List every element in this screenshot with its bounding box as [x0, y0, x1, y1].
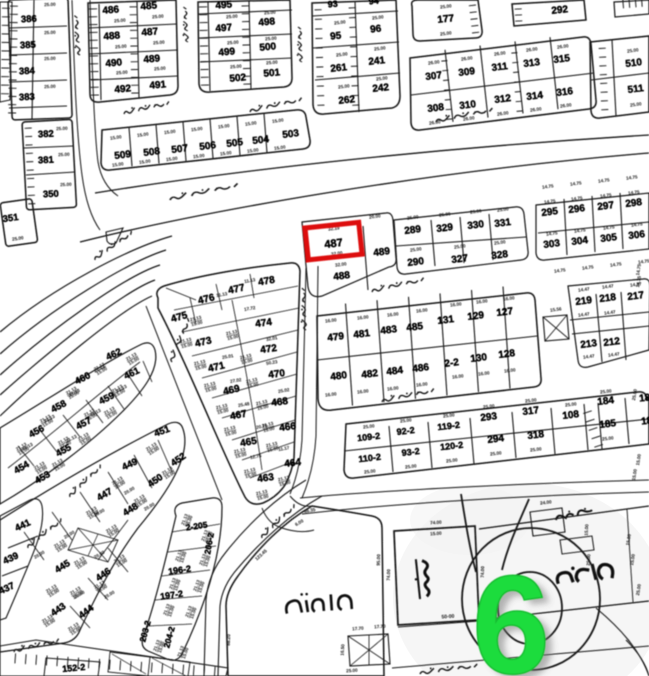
svg-text:295: 295 [541, 206, 559, 219]
svg-text:327: 327 [451, 253, 469, 266]
svg-text:74.00: 74.00 [430, 520, 442, 526]
svg-text:351: 351 [2, 212, 20, 225]
svg-text:509: 509 [114, 149, 132, 162]
svg-text:261: 261 [330, 62, 348, 75]
svg-text:482: 482 [361, 368, 379, 381]
svg-text:386: 386 [21, 14, 37, 26]
svg-text:503: 503 [282, 128, 300, 141]
svg-text:488: 488 [333, 270, 351, 283]
svg-text:480: 480 [330, 370, 348, 383]
svg-text:481: 481 [353, 328, 371, 341]
svg-text:468: 468 [271, 396, 289, 409]
svg-text:25.00: 25.00 [153, 39, 165, 45]
svg-text:25.00: 25.00 [44, 56, 56, 62]
svg-text:315: 315 [553, 53, 571, 66]
svg-text:25.00: 25.00 [152, 13, 164, 19]
svg-text:242: 242 [372, 82, 390, 95]
svg-text:485: 485 [140, 0, 158, 12]
svg-text:128: 128 [498, 348, 516, 361]
svg-text:294: 294 [487, 433, 505, 446]
svg-text:18: 18 [639, 392, 649, 404]
svg-text:506: 506 [199, 140, 217, 153]
svg-text:486: 486 [102, 4, 120, 16]
svg-text:127: 127 [496, 306, 514, 319]
svg-text:177: 177 [437, 13, 455, 26]
svg-text:25.00: 25.00 [44, 2, 56, 8]
svg-text:383: 383 [19, 92, 35, 104]
svg-text:500: 500 [259, 41, 277, 53]
svg-text:25.00: 25.00 [586, 554, 592, 566]
svg-text:489: 489 [143, 53, 161, 65]
svg-text:312: 312 [494, 93, 512, 106]
svg-text:16.50: 16.50 [340, 644, 346, 656]
svg-text:329: 329 [436, 222, 454, 235]
svg-text:184: 184 [597, 395, 615, 408]
svg-text:508: 508 [143, 146, 161, 159]
svg-text:262: 262 [338, 94, 356, 107]
svg-text:499: 499 [218, 46, 236, 58]
svg-text:296: 296 [568, 203, 586, 216]
svg-text:95.00: 95.00 [376, 554, 381, 566]
svg-text:25.00: 25.00 [116, 69, 128, 75]
svg-text:219: 219 [575, 295, 593, 308]
svg-text:492: 492 [114, 83, 132, 95]
svg-text:489: 489 [373, 246, 391, 259]
svg-text:308: 308 [427, 102, 445, 115]
svg-text:318: 318 [527, 429, 545, 442]
svg-text:218: 218 [599, 292, 617, 305]
svg-text:504: 504 [252, 134, 270, 147]
svg-text:306: 306 [628, 229, 646, 242]
svg-text:298: 298 [625, 197, 643, 210]
svg-text:108: 108 [562, 409, 580, 422]
svg-text:93-2: 93-2 [401, 446, 420, 458]
svg-text:488: 488 [103, 30, 121, 42]
svg-text:25.00: 25.00 [346, 668, 358, 674]
svg-text:497: 497 [215, 22, 233, 34]
svg-text:495: 495 [215, 0, 233, 12]
svg-text:185: 185 [599, 418, 617, 431]
svg-text:92-2: 92-2 [396, 425, 415, 437]
svg-text:316: 316 [556, 86, 574, 99]
svg-text:25.00: 25.00 [114, 17, 126, 23]
svg-text:25.00: 25.00 [44, 30, 56, 36]
svg-text:309: 309 [458, 66, 476, 79]
svg-text:491: 491 [149, 79, 167, 91]
svg-text:487: 487 [324, 237, 344, 251]
svg-text:385: 385 [20, 40, 37, 52]
svg-text:25.00: 25.00 [227, 39, 239, 45]
svg-text:485: 485 [406, 321, 424, 334]
svg-text:311: 311 [491, 61, 509, 74]
svg-text:50-00: 50-00 [441, 614, 454, 621]
svg-text:25.00: 25.00 [264, 9, 276, 15]
svg-text:93: 93 [327, 0, 338, 10]
svg-text:213: 213 [580, 338, 598, 351]
svg-text:25.00: 25.00 [265, 35, 277, 41]
svg-text:304: 304 [571, 235, 589, 248]
svg-text:95: 95 [330, 30, 343, 42]
svg-text:131: 131 [437, 314, 455, 327]
svg-text:289: 289 [404, 224, 422, 237]
svg-text:502: 502 [229, 72, 247, 84]
svg-text:129: 129 [467, 310, 485, 323]
svg-text:96: 96 [370, 23, 383, 35]
svg-text:501: 501 [263, 67, 281, 79]
svg-text:350: 350 [43, 189, 59, 201]
svg-text:313: 313 [523, 57, 541, 70]
svg-text:212: 212 [603, 336, 621, 349]
svg-text:331: 331 [494, 217, 512, 230]
svg-text:510: 510 [625, 57, 643, 70]
svg-text:17.70: 17.70 [374, 624, 386, 630]
svg-text:470: 470 [268, 368, 286, 381]
svg-text:88.20: 88.20 [226, 634, 231, 646]
svg-text:25.00: 25.00 [58, 152, 70, 158]
svg-text:25.00: 25.00 [44, 84, 56, 90]
svg-text:15.00: 15.00 [430, 531, 442, 537]
svg-text:293: 293 [480, 411, 498, 424]
svg-text:18: 18 [641, 415, 649, 427]
svg-text:303: 303 [543, 238, 561, 251]
svg-text:490: 490 [105, 57, 123, 69]
svg-text:25.00: 25.00 [266, 59, 278, 65]
svg-text:328: 328 [491, 249, 509, 262]
svg-text:152-2: 152-2 [62, 662, 86, 674]
svg-text:17.70: 17.70 [352, 626, 364, 632]
svg-text:307: 307 [425, 70, 443, 83]
svg-text:25.00: 25.00 [60, 182, 72, 188]
svg-text:297: 297 [597, 200, 615, 213]
svg-text:486: 486 [412, 362, 430, 375]
svg-text:484: 484 [386, 365, 404, 378]
svg-text:505: 505 [226, 137, 244, 150]
svg-text:483: 483 [380, 324, 398, 337]
svg-text:487: 487 [141, 26, 159, 38]
svg-text:305: 305 [600, 232, 618, 245]
svg-text:6: 6 [472, 546, 550, 676]
svg-text:217: 217 [627, 290, 645, 303]
svg-text:317: 317 [522, 405, 540, 418]
svg-text:25.00: 25.00 [115, 43, 127, 49]
svg-text:314: 314 [526, 90, 544, 103]
svg-text:381: 381 [38, 155, 55, 167]
svg-text:330: 330 [467, 219, 485, 232]
svg-text:130: 130 [470, 352, 488, 365]
svg-text:498: 498 [258, 16, 276, 28]
svg-text:507: 507 [171, 143, 189, 156]
svg-text:511: 511 [627, 83, 645, 96]
svg-text:241: 241 [368, 55, 386, 68]
svg-text:25.00: 25.00 [226, 13, 238, 19]
svg-text:25.00: 25.00 [230, 63, 242, 69]
svg-text:292: 292 [551, 4, 569, 17]
svg-text:74.00: 74.00 [386, 569, 391, 581]
svg-text:290: 290 [407, 256, 425, 269]
svg-text:94: 94 [368, 0, 379, 7]
svg-text:2-2: 2-2 [444, 357, 460, 370]
svg-text:25.00: 25.00 [56, 126, 68, 132]
svg-text:310: 310 [459, 99, 477, 112]
svg-text:384: 384 [19, 66, 36, 78]
svg-text:382: 382 [38, 129, 54, 141]
svg-text:25.00: 25.00 [154, 65, 166, 71]
svg-text:479: 479 [327, 331, 345, 344]
svg-text:15.00: 15.00 [584, 524, 590, 536]
